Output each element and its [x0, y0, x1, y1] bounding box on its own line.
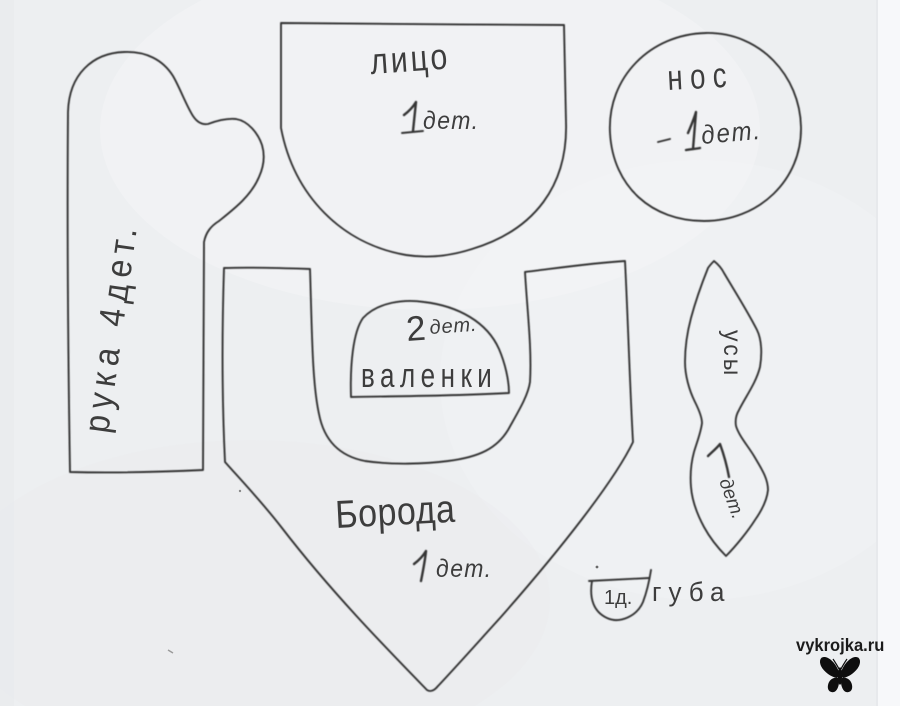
svg-text:2: 2 — [405, 309, 427, 349]
svg-text:губа: губа — [652, 576, 732, 607]
svg-text:нос: нос — [666, 54, 734, 98]
svg-text:лицо: лицо — [369, 37, 452, 83]
svg-text:дет.: дет. — [423, 107, 479, 135]
svg-text:дет.: дет. — [436, 555, 492, 583]
svg-text:vykrojka.ru: vykrojka.ru — [796, 634, 884, 655]
svg-text:1д.: 1д. — [604, 587, 632, 609]
svg-text:дет.: дет. — [700, 116, 763, 150]
svg-text:усы: усы — [718, 330, 746, 378]
svg-text:Борода: Борода — [334, 487, 456, 537]
svg-text:дет.: дет. — [429, 314, 478, 339]
svg-text:валенки: валенки — [361, 358, 497, 395]
